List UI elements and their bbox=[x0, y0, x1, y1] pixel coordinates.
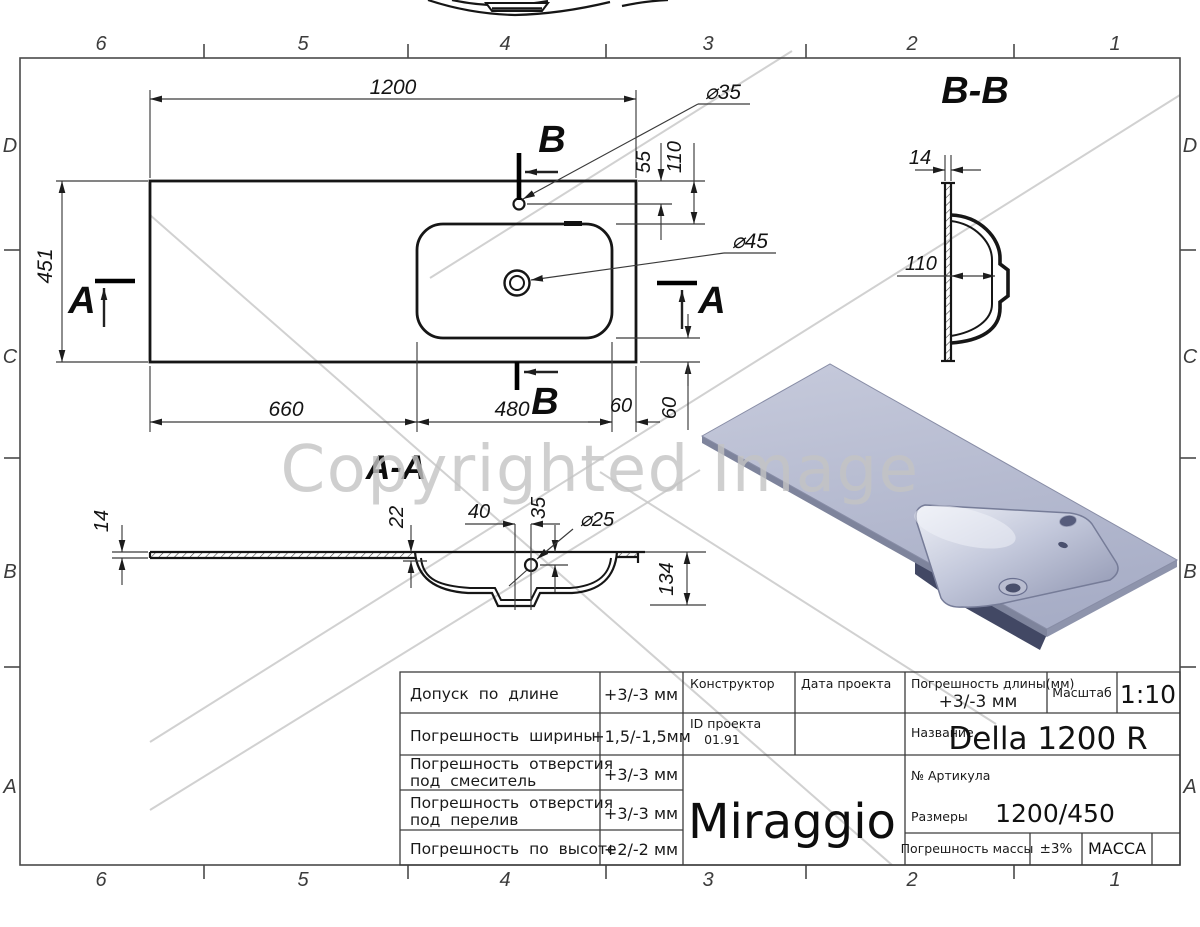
svg-text:+3/-3 мм: +3/-3 мм bbox=[604, 765, 678, 784]
zone-col-label: 3 bbox=[702, 869, 713, 891]
svg-text:под перелив: под перелив bbox=[410, 811, 518, 829]
tolerance-table: Допуск по длине +3/-3 мм Погрешность шир… bbox=[410, 685, 691, 859]
svg-text:+3/-3 мм: +3/-3 мм bbox=[604, 685, 678, 704]
zone-col-label: 1 bbox=[1109, 33, 1120, 55]
dimension-height-451: 451 bbox=[34, 181, 148, 362]
leader-drain-diameter: ⌀45 bbox=[531, 230, 776, 280]
technical-drawing-svg: 6 5 4 3 2 1 6 5 4 3 2 1 D C B A D C B A bbox=[0, 0, 1200, 927]
cropped-top-view-fragment bbox=[428, 0, 668, 15]
svg-text:110: 110 bbox=[905, 253, 937, 275]
faucet-hole bbox=[514, 199, 525, 210]
overflow-mark bbox=[564, 221, 582, 226]
svg-text:ID проекта: ID проекта bbox=[690, 716, 761, 731]
zone-row-label: B bbox=[1183, 561, 1196, 583]
svg-text:№ Артикула: № Артикула bbox=[911, 768, 990, 783]
zone-col-label: 2 bbox=[905, 869, 917, 891]
svg-text:134: 134 bbox=[656, 562, 678, 595]
zone-row-label: D bbox=[3, 135, 17, 157]
svg-text:B: B bbox=[531, 381, 558, 423]
dimension-aa-drain-depth-35: 35 bbox=[528, 496, 568, 592]
svg-text:МАССА: МАССА bbox=[1088, 839, 1146, 858]
svg-text:B-B: B-B bbox=[941, 70, 1009, 112]
svg-text:⌀25: ⌀25 bbox=[580, 509, 615, 531]
drain-hole-inner bbox=[510, 276, 524, 290]
svg-text:Дата проекта: Дата проекта bbox=[801, 676, 891, 691]
svg-text:+1,5/-1,5мм: +1,5/-1,5мм bbox=[591, 727, 691, 746]
svg-text:Погрешность отверстия: Погрешность отверстия bbox=[410, 794, 613, 812]
svg-text:⌀35: ⌀35 bbox=[705, 81, 741, 104]
title-block-right: Погрешность длины(мм) +3/-3 мм Масштаб 1… bbox=[901, 676, 1176, 858]
watermark-text: Copyrighted Image bbox=[281, 433, 920, 507]
zone-col-label: 6 bbox=[95, 869, 107, 891]
svg-text:⌀45: ⌀45 bbox=[732, 230, 768, 253]
svg-text:A: A bbox=[67, 280, 95, 322]
svg-text:60: 60 bbox=[610, 395, 632, 417]
svg-text:Погрешность отверстия: Погрешность отверстия bbox=[410, 755, 613, 773]
svg-text:+2/-2 мм: +2/-2 мм bbox=[604, 840, 678, 859]
svg-text:22: 22 bbox=[386, 506, 408, 529]
svg-text:451: 451 bbox=[34, 248, 57, 283]
svg-text:01.91: 01.91 bbox=[704, 732, 740, 747]
dimension-aa-rim-22: 22 bbox=[386, 506, 427, 588]
svg-text:60: 60 bbox=[659, 397, 681, 419]
svg-text:14: 14 bbox=[91, 510, 113, 532]
svg-text:480: 480 bbox=[494, 398, 529, 421]
zone-col-label: 4 bbox=[499, 869, 510, 891]
zone-row-label: C bbox=[3, 346, 18, 368]
svg-text:Погрешность ширины: Погрешность ширины bbox=[410, 727, 596, 745]
product-size: 1200/450 bbox=[995, 799, 1115, 828]
zone-row-label: D bbox=[1183, 135, 1197, 157]
zone-row-label: A bbox=[1182, 776, 1196, 798]
leader-aa-drain-diameter: ⌀25 bbox=[509, 509, 615, 586]
plan-view: 1200 451 660 480 60 bbox=[34, 76, 776, 432]
render-drain-hole bbox=[1006, 584, 1021, 593]
zone-col-label: 3 bbox=[702, 33, 713, 55]
dimension-bb-wall-14: 14 bbox=[909, 147, 981, 181]
zone-row-label: A bbox=[2, 776, 16, 798]
dimension-aa-height-134: 134 bbox=[645, 552, 706, 605]
svg-text:A: A bbox=[697, 280, 725, 322]
scale-value: 1:10 bbox=[1120, 680, 1176, 709]
svg-text:14: 14 bbox=[909, 147, 931, 169]
title-block-middle: Конструктор Дата проекта ID проекта 01.9… bbox=[688, 676, 896, 850]
svg-text:Размеры: Размеры bbox=[911, 809, 968, 824]
svg-text:+3/-3 мм: +3/-3 мм bbox=[939, 692, 1018, 712]
sink-3d-render bbox=[702, 364, 1177, 650]
section-cut-b: B B bbox=[517, 119, 566, 423]
svg-text:110: 110 bbox=[664, 141, 686, 173]
zone-col-label: 5 bbox=[297, 33, 309, 55]
drawing-sheet: 6 5 4 3 2 1 6 5 4 3 2 1 D C B A D C B A bbox=[0, 0, 1200, 927]
dimension-aa-slab-14: 14 bbox=[91, 510, 148, 585]
section-bb-view: B-B 14 110 bbox=[897, 70, 1009, 361]
svg-text:Допуск по длине: Допуск по длине bbox=[410, 685, 559, 703]
section-cut-a: A A bbox=[67, 280, 725, 329]
product-name: Della 1200 R bbox=[948, 721, 1147, 757]
zone-row-label: C bbox=[1183, 346, 1198, 368]
zone-row-label: B bbox=[3, 561, 16, 583]
countertop-outline bbox=[150, 181, 636, 362]
zone-col-label: 5 bbox=[297, 869, 309, 891]
svg-text:Погрешность длины(мм): Погрешность длины(мм) bbox=[911, 676, 1074, 691]
svg-text:Погрешность массы: Погрешность массы bbox=[901, 841, 1034, 856]
zone-col-label: 6 bbox=[95, 33, 107, 55]
svg-text:1200: 1200 bbox=[370, 76, 417, 99]
zone-col-label: 4 bbox=[499, 33, 510, 55]
title-block: Допуск по длине +3/-3 мм Погрешность шир… bbox=[400, 672, 1180, 865]
dimension-bottom-chain: 660 480 60 bbox=[150, 342, 660, 432]
svg-text:Погрешность по высоте: Погрешность по высоте bbox=[410, 840, 617, 858]
svg-text:под смеситель: под смеситель bbox=[410, 772, 536, 790]
zone-col-label: 2 bbox=[905, 33, 917, 55]
bowl-inner-wall bbox=[951, 221, 992, 336]
svg-text:Конструктор: Конструктор bbox=[690, 676, 775, 691]
svg-text:±3%: ±3% bbox=[1040, 841, 1073, 857]
svg-text:B: B bbox=[538, 119, 565, 161]
svg-text:Масштаб: Масштаб bbox=[1052, 685, 1112, 700]
svg-text:660: 660 bbox=[268, 398, 303, 421]
brand-logo: Miraggio bbox=[688, 794, 896, 850]
svg-text:55: 55 bbox=[633, 150, 655, 173]
zone-col-label: 1 bbox=[1109, 869, 1120, 891]
svg-text:+3/-3 мм: +3/-3 мм bbox=[604, 804, 678, 823]
